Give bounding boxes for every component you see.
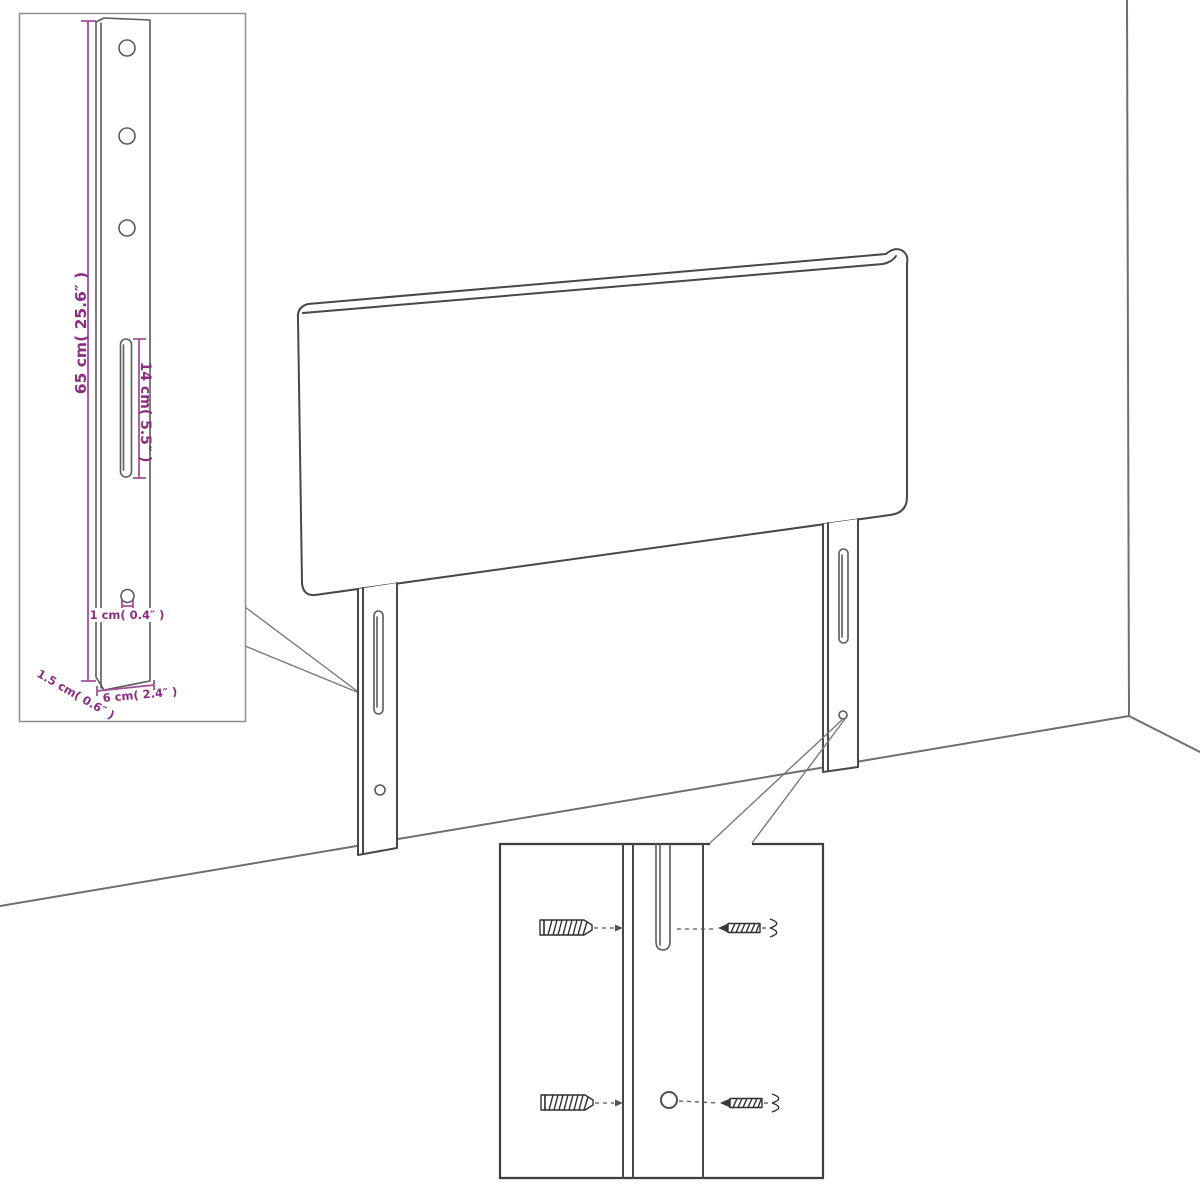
- mounting-detail-inset: [500, 844, 823, 1178]
- anchor-ribs: [549, 1095, 588, 1110]
- leg-detail-inset: 65 cm( 25.6″ ) 14 cm( 5.5″ ) 1 cm( 0.4″ …: [20, 14, 246, 723]
- closeup-hole: [661, 1092, 677, 1108]
- callout-line: [710, 719, 843, 843]
- leader-screw-bottom: [679, 1101, 718, 1103]
- wall-corner-line: [1127, 0, 1129, 716]
- dimension-label-leg-height: 65 cm( 25.6″ ): [72, 272, 90, 394]
- closeup-leg-edges: [623, 844, 703, 1178]
- leader-lines: [594, 925, 718, 1107]
- floor-line-left: [0, 716, 1129, 906]
- callout-line: [245, 646, 357, 692]
- dimension-label-slot-length: 14 cm( 5.5″ ): [137, 362, 153, 463]
- callout-line: [752, 719, 845, 843]
- screw-tip: [720, 1099, 730, 1108]
- screw-icon: [720, 1094, 779, 1112]
- inset-border: [500, 844, 823, 1178]
- screw-icon: [718, 919, 777, 937]
- inset-leg-closeup: [623, 844, 703, 1178]
- screw-head: [772, 1094, 779, 1112]
- headboard-panel: [298, 249, 907, 595]
- headboard-top-roll-line: [303, 256, 896, 313]
- screw-threads: [731, 924, 759, 933]
- headboard: [298, 249, 907, 595]
- headboard-assembly-diagram: 65 cm( 25.6″ ) 14 cm( 5.5″ ) 1 cm( 0.4″ …: [0, 0, 1200, 1200]
- wall-anchor-icon: [541, 1095, 593, 1110]
- arrowhead-icon: [615, 925, 623, 932]
- left-mounting-leg: [358, 583, 397, 855]
- callout-line: [245, 607, 357, 691]
- screw-threads: [733, 1099, 761, 1108]
- floor-line-right: [1129, 716, 1200, 752]
- diagram-canvas: 65 cm( 25.6″ ) 14 cm( 5.5″ ) 1 cm( 0.4″ …: [0, 0, 1200, 1200]
- right-mounting-leg: [823, 519, 858, 772]
- arrowhead-icon: [615, 1100, 623, 1107]
- callout-left-leg-detail: [245, 607, 357, 692]
- screw-head: [770, 919, 777, 937]
- wall-anchor-icon: [540, 920, 592, 935]
- anchor-ribs: [548, 920, 587, 935]
- dimension-label-hole-diameter: 1 cm( 0.4″ ): [90, 608, 165, 622]
- closeup-slot: [656, 844, 670, 950]
- screw-tip: [718, 924, 728, 933]
